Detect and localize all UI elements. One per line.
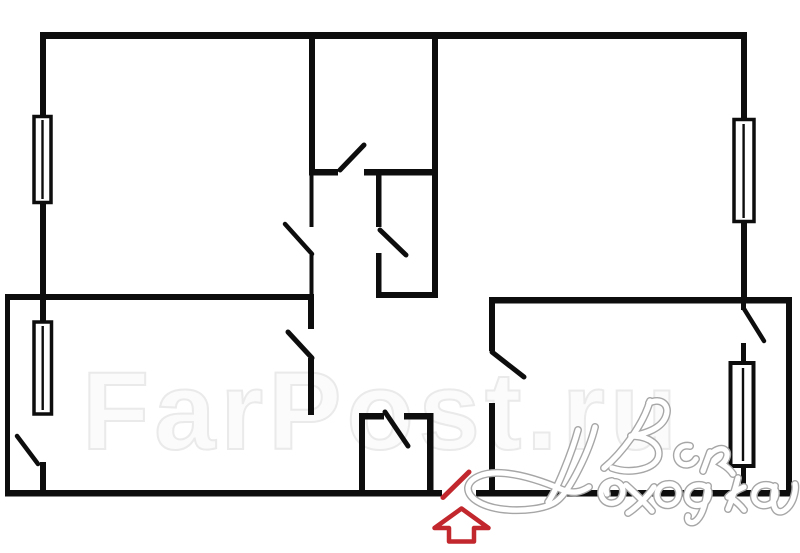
svg-text:FarPost.ru: FarPost.ru: [82, 350, 682, 473]
